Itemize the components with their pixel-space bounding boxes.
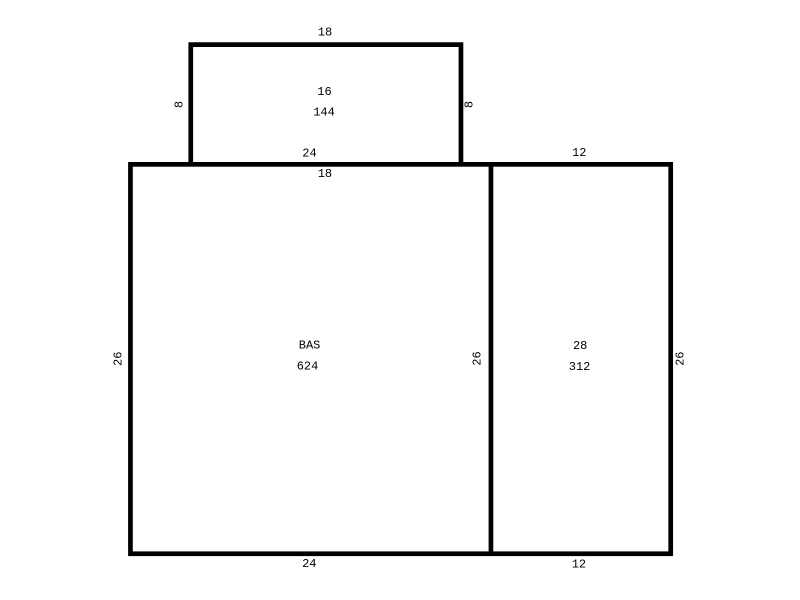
svg-text:24: 24 [302, 147, 316, 161]
svg-text:16: 16 [317, 85, 331, 99]
svg-text:26: 26 [673, 351, 687, 365]
svg-text:18: 18 [318, 167, 332, 181]
svg-text:26: 26 [471, 351, 485, 365]
svg-text:BAS: BAS [299, 339, 321, 353]
svg-text:26: 26 [112, 352, 126, 366]
svg-text:28: 28 [573, 339, 587, 353]
svg-text:8: 8 [172, 101, 186, 108]
svg-text:12: 12 [572, 557, 586, 571]
svg-text:24: 24 [302, 557, 316, 571]
svg-text:18: 18 [318, 26, 332, 40]
svg-text:624: 624 [297, 360, 319, 374]
svg-text:312: 312 [569, 360, 591, 374]
svg-text:12: 12 [572, 146, 586, 160]
svg-text:144: 144 [313, 105, 335, 119]
svg-text:8: 8 [463, 101, 477, 108]
